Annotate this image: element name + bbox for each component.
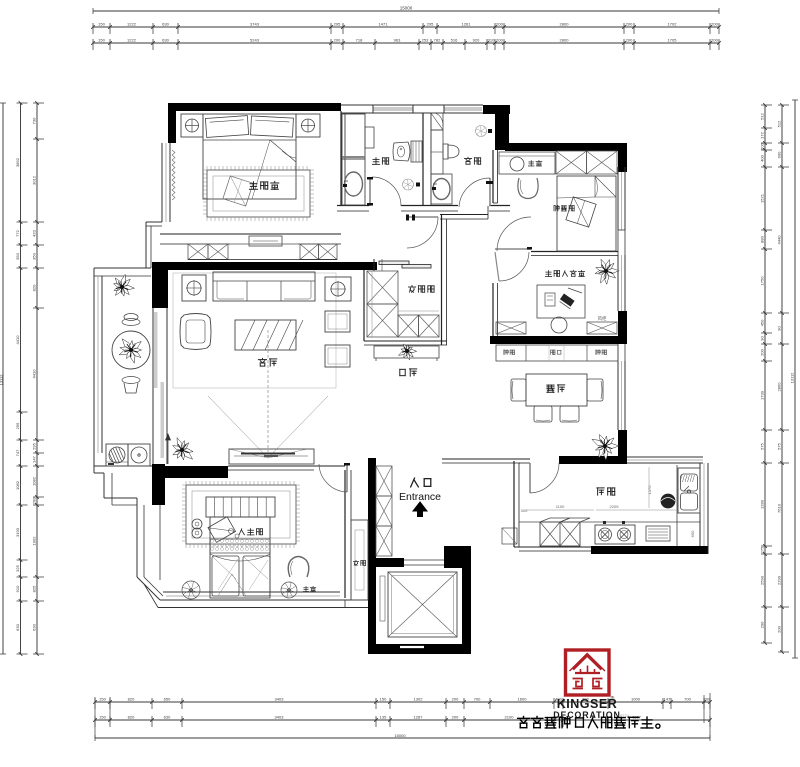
svg-text:600: 600 [777, 151, 782, 158]
svg-text:2290: 2290 [777, 575, 782, 585]
svg-text:200: 200 [760, 142, 765, 149]
svg-text:172: 172 [760, 131, 765, 138]
svg-text:15000: 15000 [400, 6, 413, 11]
svg-text:200: 200 [32, 497, 37, 504]
svg-text:275: 275 [760, 546, 765, 553]
svg-text:630: 630 [162, 22, 169, 27]
svg-text:1000: 1000 [631, 697, 641, 702]
svg-text:1521: 1521 [760, 193, 765, 203]
svg-text:2100: 2100 [505, 715, 515, 720]
svg-text:400: 400 [760, 154, 765, 161]
svg-text:2205: 2205 [610, 504, 620, 509]
svg-text:Entrance: Entrance [399, 491, 441, 503]
svg-text:2590: 2590 [760, 575, 765, 585]
svg-text:350: 350 [32, 252, 37, 259]
svg-text:420: 420 [32, 229, 37, 236]
svg-text:风柜: 风柜 [598, 315, 607, 322]
svg-text:150: 150 [98, 38, 105, 43]
svg-text:200: 200 [496, 22, 503, 27]
svg-text:516: 516 [451, 38, 458, 43]
svg-text:630: 630 [162, 38, 169, 43]
svg-text:150: 150 [99, 715, 106, 720]
svg-text:200: 200 [334, 38, 341, 43]
svg-text:1082: 1082 [32, 476, 37, 486]
svg-text:2800: 2800 [560, 38, 570, 43]
svg-text:4410: 4410 [32, 369, 37, 379]
svg-text:1902: 1902 [32, 536, 37, 546]
svg-text:575: 575 [777, 442, 782, 449]
svg-text:1471: 1471 [379, 22, 389, 27]
svg-text:3403: 3403 [275, 715, 285, 720]
svg-text:3743: 3743 [250, 22, 260, 27]
svg-text:200: 200 [626, 22, 633, 27]
svg-text:300: 300 [521, 508, 528, 513]
svg-text:630: 630 [164, 715, 171, 720]
svg-text:1287: 1287 [414, 715, 424, 720]
svg-text:200: 200 [496, 38, 503, 43]
svg-text:253: 253 [422, 38, 429, 43]
svg-text:1302: 1302 [414, 697, 424, 702]
svg-text:920: 920 [473, 38, 480, 43]
svg-text:200: 200 [777, 625, 782, 632]
svg-text:1705: 1705 [668, 38, 678, 43]
svg-text:147: 147 [664, 697, 671, 702]
svg-text:200: 200 [760, 621, 765, 628]
svg-text:1750: 1750 [760, 276, 765, 286]
svg-text:1100: 1100 [556, 504, 565, 509]
svg-text:650: 650 [164, 697, 171, 702]
svg-text:310: 310 [488, 38, 495, 43]
svg-text:3403: 3403 [275, 697, 285, 702]
svg-text:5243: 5243 [250, 38, 260, 43]
svg-text:1082: 1082 [15, 480, 20, 490]
svg-text:450: 450 [760, 319, 765, 326]
svg-text:512: 512 [760, 112, 765, 119]
svg-text:7610: 7610 [777, 503, 782, 513]
svg-text:630: 630 [32, 623, 37, 630]
svg-text:295: 295 [15, 422, 20, 429]
svg-text:3892: 3892 [15, 157, 20, 167]
svg-text:DECORATION: DECORATION [553, 710, 620, 720]
svg-text:®: ® [611, 695, 615, 702]
svg-text:295: 295 [32, 442, 37, 449]
svg-text:200: 200 [452, 697, 459, 702]
svg-text:1280: 1280 [760, 499, 765, 509]
svg-text:90: 90 [760, 336, 765, 341]
svg-text:295: 295 [334, 22, 341, 27]
svg-text:820: 820 [32, 284, 37, 291]
svg-text:782: 782 [434, 38, 441, 43]
svg-text:200: 200 [760, 348, 765, 355]
svg-text:15000: 15000 [394, 733, 406, 738]
svg-text:1261: 1261 [462, 22, 472, 27]
svg-text:575: 575 [760, 442, 765, 449]
svg-text:13112: 13112 [790, 372, 795, 384]
svg-text:200: 200 [452, 715, 459, 720]
svg-text:1370: 1370 [647, 485, 652, 495]
svg-text:147: 147 [32, 455, 37, 462]
svg-text:135: 135 [380, 715, 387, 720]
svg-text:200: 200 [711, 22, 718, 27]
svg-text:2860: 2860 [777, 382, 782, 392]
svg-text:512: 512 [777, 120, 782, 127]
svg-text:4440: 4440 [777, 235, 782, 245]
svg-text:963: 963 [394, 38, 401, 43]
svg-text:630: 630 [15, 623, 20, 630]
svg-text:1222: 1222 [127, 22, 137, 27]
svg-text:700: 700 [474, 697, 481, 702]
svg-text:718: 718 [356, 38, 363, 43]
svg-text:3012: 3012 [32, 175, 37, 185]
svg-text:90: 90 [777, 326, 782, 331]
svg-text:13112: 13112 [0, 374, 4, 386]
svg-text:772: 772 [15, 229, 20, 236]
svg-text:295: 295 [427, 22, 434, 27]
svg-text:820: 820 [128, 715, 135, 720]
svg-text:820: 820 [128, 697, 135, 702]
svg-text:600: 600 [690, 530, 695, 537]
svg-text:730: 730 [32, 117, 37, 124]
svg-text:880: 880 [760, 235, 765, 242]
svg-text:200: 200 [711, 38, 718, 43]
svg-text:150: 150 [380, 697, 387, 702]
svg-text:3190: 3190 [15, 527, 20, 537]
svg-text:700: 700 [684, 697, 691, 702]
svg-text:910: 910 [15, 585, 20, 592]
svg-text:150: 150 [98, 22, 105, 27]
svg-text:4410: 4410 [15, 335, 20, 345]
svg-text:150: 150 [99, 697, 106, 702]
svg-text:2800: 2800 [560, 22, 570, 27]
svg-text:1730: 1730 [760, 390, 765, 400]
svg-text:1702: 1702 [668, 22, 678, 27]
svg-text:825: 825 [32, 585, 37, 592]
svg-text:350: 350 [15, 252, 20, 259]
svg-text:1600: 1600 [518, 697, 528, 702]
svg-text:325: 325 [15, 564, 20, 571]
svg-text:1222: 1222 [127, 38, 137, 43]
svg-text:KINGSER: KINGSER [557, 697, 617, 711]
svg-text:747: 747 [15, 449, 20, 456]
svg-text:200: 200 [626, 38, 633, 43]
